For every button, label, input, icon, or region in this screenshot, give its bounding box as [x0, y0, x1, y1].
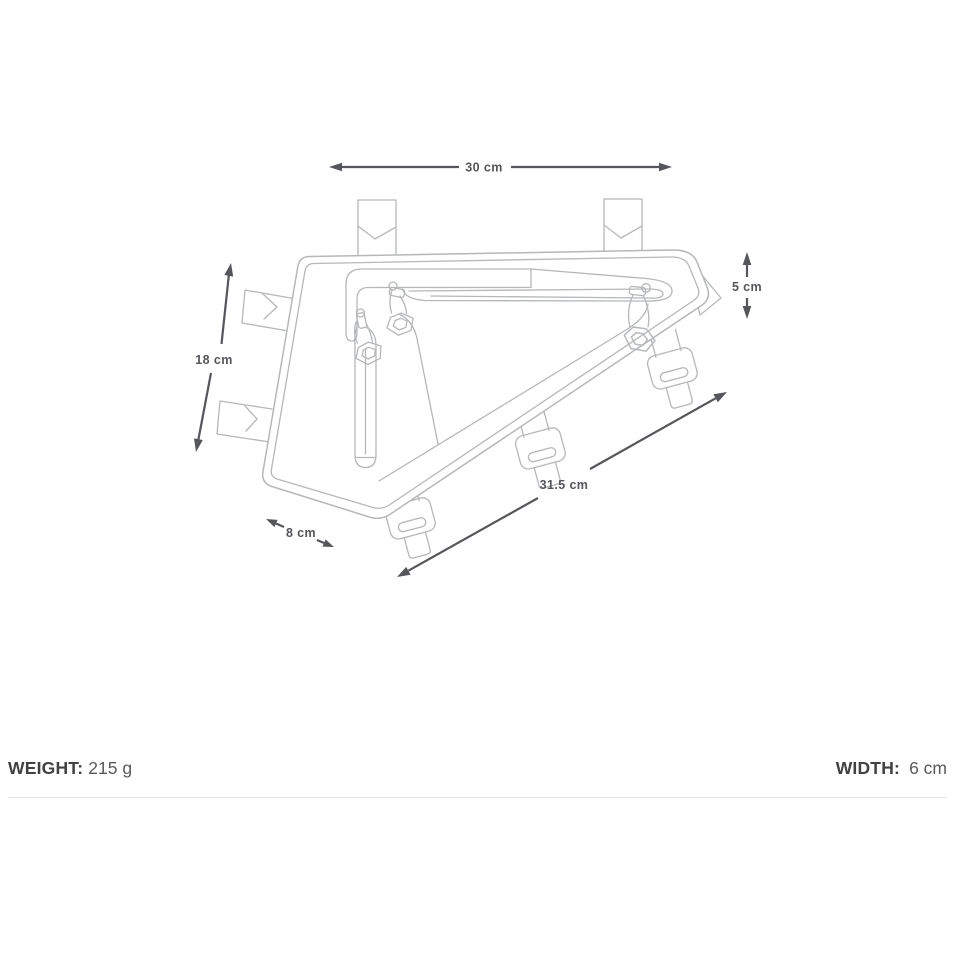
- top-strap-left: [358, 200, 396, 256]
- width-value: 6 cm: [909, 758, 947, 778]
- weight-label: WEIGHT:: [8, 758, 83, 778]
- dimension-width-top-label: 30 cm: [465, 161, 502, 175]
- left-strap-lower: [217, 401, 272, 442]
- dimension-height-left-label: 18 cm: [195, 353, 232, 367]
- spec-row: WEIGHT:215 g WIDTH:6 cm: [8, 753, 947, 783]
- width-spec: WIDTH:6 cm: [836, 758, 947, 779]
- dimension-height-right-label: 5 cm: [732, 280, 762, 294]
- dimension-height-right: 5 cm: [732, 252, 762, 319]
- dimension-length-bottom-label: 31.5 cm: [540, 478, 589, 492]
- dimension-width-top: 30 cm: [329, 161, 672, 175]
- frame-pack-bag: [217, 199, 721, 562]
- weight-spec: WEIGHT:215 g: [8, 758, 132, 779]
- weight-value: 215 g: [88, 758, 132, 778]
- bottom-divider: [8, 797, 947, 798]
- frame-pack-drawing: 30 cm 5 cm 18 cm 31.5 cm: [0, 0, 956, 956]
- top-strap-right: [604, 199, 642, 255]
- dimension-height-left: 18 cm: [194, 263, 233, 452]
- dimension-depth-front: 8 cm: [266, 519, 334, 547]
- width-label: WIDTH:: [836, 758, 900, 778]
- product-dimension-diagram: 30 cm 5 cm 18 cm 31.5 cm: [0, 0, 956, 956]
- dimension-depth-front-label: 8 cm: [286, 526, 316, 540]
